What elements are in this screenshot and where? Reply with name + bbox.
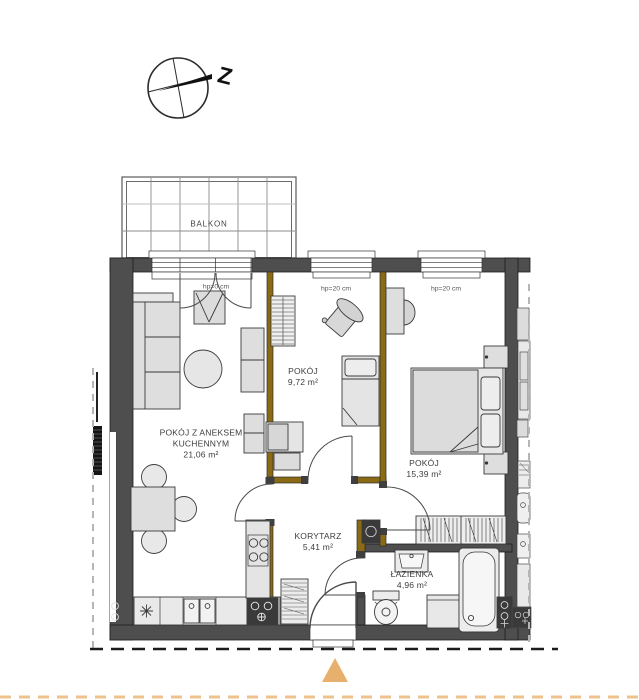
small-room-door	[308, 436, 352, 480]
armchair-mat	[194, 291, 225, 324]
balcony	[122, 177, 296, 258]
window-sill-label: hp=0 cm	[203, 284, 229, 291]
room-label-living: POKÓJ Z ANEKSEM KUCHENNYM 21,06 m²	[141, 427, 261, 460]
room-label-large: POKÓJ 15,39 m²	[359, 458, 489, 480]
living-room-door	[235, 484, 272, 521]
shelf	[133, 293, 173, 302]
floor-plan: Z BALKON hp=0 cm hp=20 cm hp=20 cm POKÓJ…	[0, 0, 639, 700]
left-exterior-details	[93, 372, 102, 475]
room-name: ŁAZIENKA	[347, 569, 477, 580]
room-name: POKÓJ	[238, 366, 368, 377]
bedroom-furniture	[386, 288, 508, 544]
compass	[148, 58, 212, 118]
desk-chair	[321, 295, 367, 341]
wardrobe-hatched	[271, 296, 295, 346]
room-label-small: POKÓJ 9,72 m²	[238, 366, 368, 388]
room-label-corridor: KORYTARZ 5,41 m²	[253, 531, 383, 553]
room-name: POKÓJ Z ANEKSEM KUCHENNYM	[141, 427, 261, 449]
water-heater	[497, 597, 512, 628]
room-area: 15,39 m²	[359, 469, 489, 480]
balcony-label: BALKON	[190, 220, 227, 229]
sink-bowl	[184, 599, 199, 623]
window-sill-label: hp=20 cm	[431, 286, 461, 293]
entrance-marker-triangle	[322, 658, 348, 682]
double-bed	[411, 368, 503, 454]
room-area: 4,96 m²	[347, 580, 477, 591]
room-area: 9,72 m²	[238, 377, 368, 388]
room-label-bathroom: ŁAZIENKA 4,96 m²	[347, 569, 477, 591]
window-sill-label: hp=20 cm	[321, 286, 351, 293]
sofa	[133, 302, 180, 409]
dining-set	[131, 465, 197, 554]
room-area: 21,06 m²	[141, 450, 261, 461]
compass-needle	[158, 74, 212, 91]
sink-bowl	[200, 599, 215, 623]
room-area: 5,41 m²	[253, 542, 383, 553]
chair	[404, 300, 415, 325]
left-wall-recess	[110, 432, 116, 622]
floor-plan-drawing	[0, 0, 639, 700]
room-name: POKÓJ	[359, 458, 489, 469]
desk	[386, 288, 404, 334]
room-name: KORYTARZ	[253, 531, 383, 542]
toilet	[373, 591, 399, 625]
round-rug	[184, 350, 222, 388]
corridor-cabinet	[281, 579, 308, 624]
